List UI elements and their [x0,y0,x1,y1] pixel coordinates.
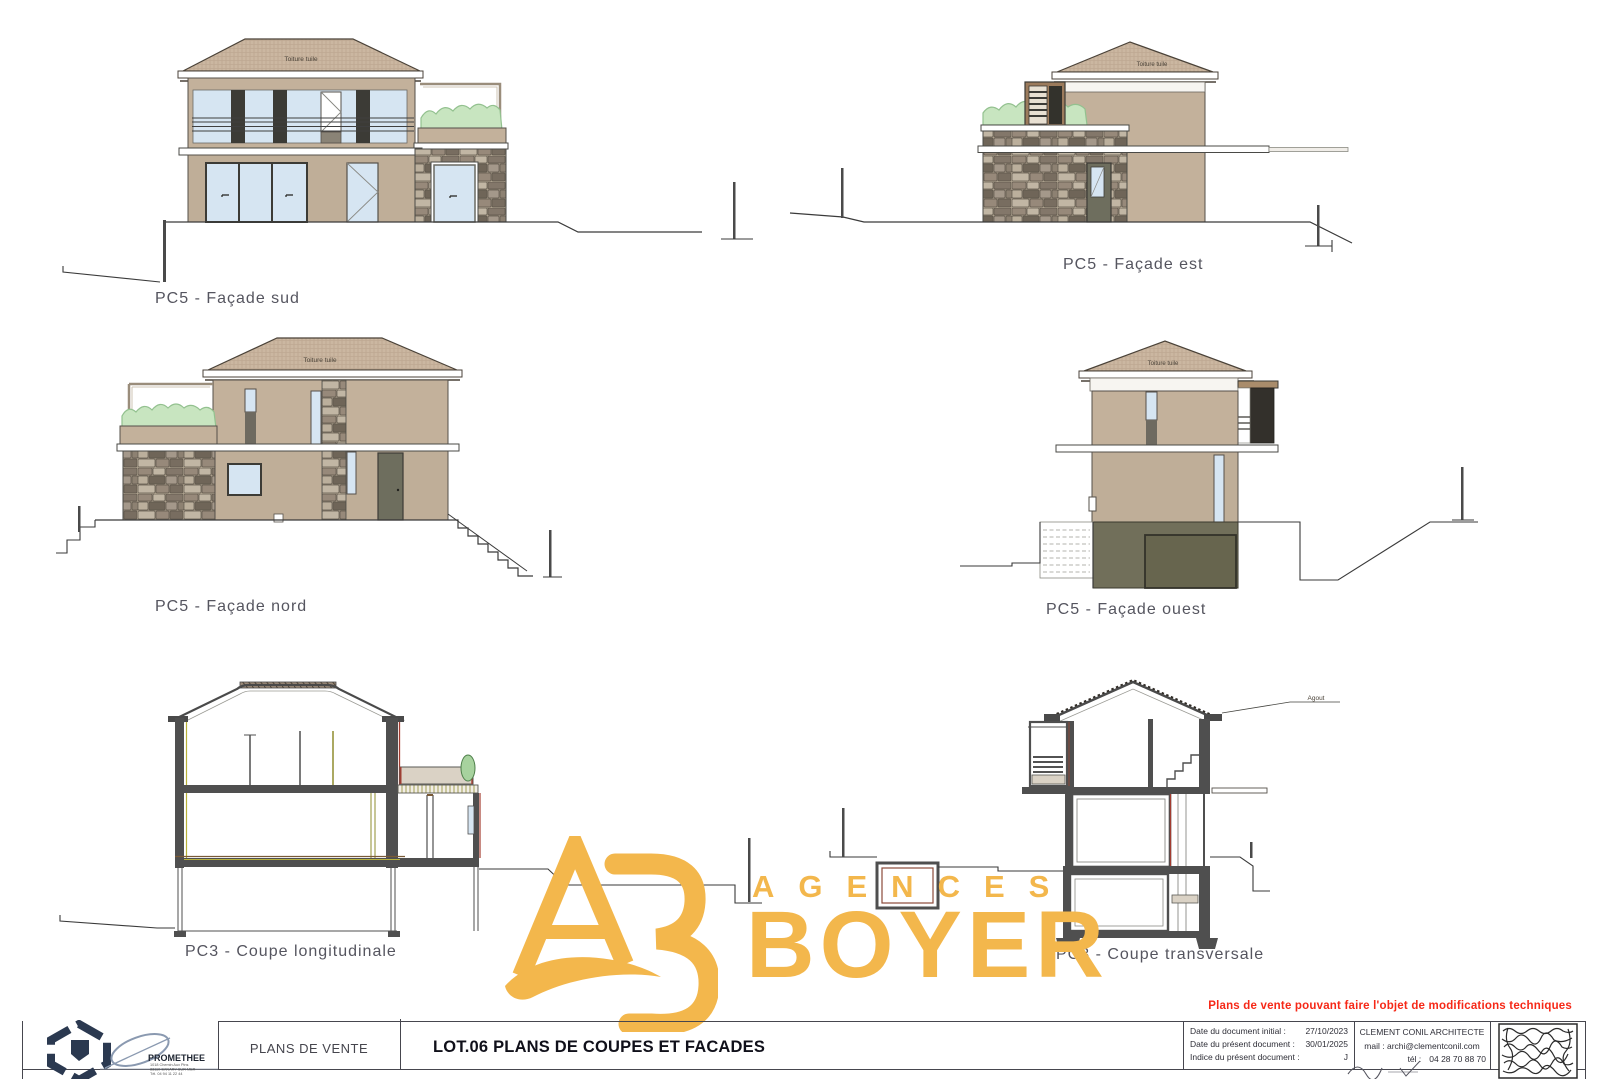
svg-text:Toiture tuile: Toiture tuile [1148,361,1179,367]
mail-value: archi@clementconil.com [1387,1041,1480,1051]
upper-wall [1092,391,1238,446]
title-block-border [1183,1021,1184,1069]
document-dates: Date du document initial : 27/10/2023 Da… [1190,1025,1348,1063]
floor-slab [117,444,459,451]
facade-ouest-roof: Toiture tuile [1079,341,1254,381]
date-initial-value: 27/10/2023 [1305,1025,1348,1038]
plan-sheet: Toiture tuile [0,0,1600,1079]
angled-door [347,163,378,222]
tall-window [311,391,321,445]
facade-est-drawing: Toiture tuile [790,42,1352,252]
svg-text:83110 SANARY SUR MER: 83110 SANARY SUR MER [150,1068,196,1072]
tree [461,755,475,781]
upper-glazing [193,90,407,143]
dark-volume [1250,388,1274,443]
facade-ouest-drawing: Toiture tuile [960,341,1478,588]
date-current-value: 30/01/2025 [1305,1038,1348,1051]
ab-monogram-logo [503,836,718,1032]
coupe-longitudinale-label: PC3 - Coupe longitudinale [185,943,397,961]
modifications-notice: Plans de vente pouvant faire l'objet de … [1208,1000,1572,1012]
entry-door [378,453,403,520]
mid-slab [175,785,398,793]
square-window [228,464,261,495]
hidden-stairs [1040,522,1093,588]
roof-hedge [122,404,216,428]
facade-sud-roof: Toiture tuile [178,39,423,81]
facade-est-label: PC5 - Façade est [1063,256,1204,274]
floor-slab [978,146,1269,153]
narrow-window [1146,392,1157,420]
narrow-window [245,389,256,412]
architect-mail: mail : archi@clementconil.com [1358,1040,1486,1054]
stairs [448,520,533,576]
roof-section [171,685,404,721]
facade-nord-drawing: Toiture tuile [56,338,562,577]
sliding-bay [206,163,307,222]
sheet-title: LOT.06 PLANS DE COUPES ET FACADES [433,1038,765,1057]
lower-slab [1063,866,1210,874]
title-block-border [218,1021,1585,1022]
slot-window [1214,455,1224,522]
svg-text:Agout: Agout [1308,695,1325,702]
date-current-label: Date du présent document : [1190,1038,1295,1051]
architect-name: CLEMENT CONIL ARCHITECTE [1358,1026,1486,1040]
terrace-annex [398,755,480,931]
signature-mark [1340,1056,1440,1079]
svg-text:Toiture tuile: Toiture tuile [1137,62,1168,68]
facade-est-roof: Toiture tuile [1052,42,1218,82]
floor-slab [179,148,422,155]
mail-label: mail : [1364,1041,1384,1051]
roof-hedge [421,104,502,130]
title-block-border [400,1019,401,1069]
entry-door [434,165,475,222]
svg-text:Tél. 04 94 11 22 44: Tél. 04 94 11 22 44 [150,1072,182,1076]
svg-text:PROMETHEE: PROMETHEE [148,1053,205,1063]
date-initial-row: Date du document initial : 27/10/2023 [1190,1025,1348,1038]
facade-nord-roof: Toiture tuile [203,338,462,380]
louver-closet [1028,722,1067,786]
facade-nord-label: PC5 - Façade nord [155,598,307,616]
stamp-maze-pattern [1498,1023,1578,1079]
title-block-border [1585,1021,1586,1079]
watermark-word-boyer: BOYER [746,898,1109,993]
document-index-row: Indice du présent document : J [1190,1051,1348,1064]
date-current-row: Date du présent document : 30/01/2025 [1190,1038,1348,1051]
facade-sud-label: PC5 - Façade sud [155,290,300,308]
slot-window [347,452,356,494]
stone-volume [123,451,215,520]
stairs-section [1167,755,1199,787]
facade-sud-drawing: Toiture tuile [63,39,753,282]
roof-section [1050,682,1216,719]
svg-text:1018 Chemin Aux Pins: 1018 Chemin Aux Pins [150,1063,189,1067]
sewer-leader-line [1222,702,1340,713]
middle-room [1072,794,1170,867]
date-initial-label: Date du document initial : [1190,1025,1286,1038]
document-type: PLANS DE VENTE [218,1041,400,1056]
floor-slab [1056,445,1278,452]
title-block-border [1490,1021,1491,1069]
title-block-border [22,1021,23,1079]
document-index-label: Indice du présent document : [1190,1051,1300,1064]
facade-ouest-label: PC5 - Façade ouest [1046,601,1206,619]
promethee-logo: PROMETHEE 1018 Chemin Aux Pins 83110 SAN… [100,1028,225,1078]
garage-door [1145,535,1236,588]
svg-text:Toiture tuile: Toiture tuile [284,56,318,63]
svg-text:Toiture tuile: Toiture tuile [303,357,337,364]
flat-roof-edge [1238,381,1278,388]
